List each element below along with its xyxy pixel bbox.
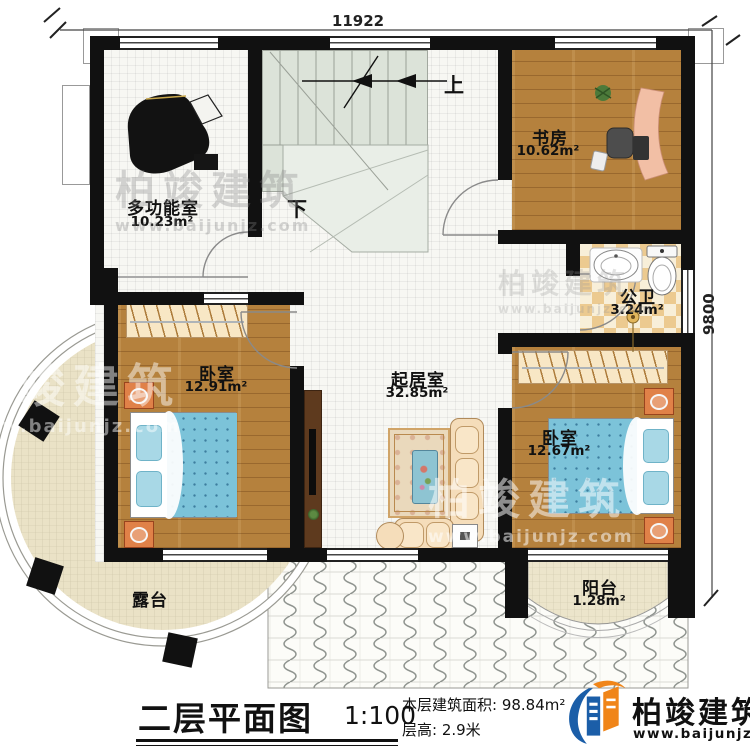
wall (668, 548, 695, 618)
floor-plan-canvas: 11922 9800 多功能室 10.23m² 书房 10.62m² 公卫 3.… (0, 0, 750, 752)
pillow (643, 429, 669, 463)
stairs-up-label: 上 (444, 69, 464, 98)
wall (498, 408, 512, 562)
room-area-balcony: 1.28m² (572, 593, 625, 609)
room-area-bedroom-right: 12.67m² (528, 443, 591, 459)
nightstand (124, 521, 154, 548)
wall (498, 230, 695, 244)
bed-left (130, 412, 236, 518)
pillow (136, 425, 162, 461)
wall (566, 244, 580, 276)
wall (290, 366, 304, 562)
sofa-cushion (455, 426, 479, 454)
floor-height-text: 层高: 2.9米 (402, 719, 481, 740)
room-area-multi: 10.23m² (131, 214, 194, 230)
sofa-cushion (455, 458, 479, 488)
floor-stairs (262, 50, 428, 192)
partition-line (104, 276, 203, 278)
wall (498, 347, 512, 354)
wardrobe-rail (522, 367, 664, 369)
room-area-living: 32.85m² (386, 385, 449, 401)
wall (681, 333, 695, 562)
room-area-study: 10.62m² (517, 143, 580, 159)
balcony-door-window (528, 548, 668, 562)
wall (498, 50, 512, 180)
wall (498, 333, 695, 347)
stairs-down-label: 下 (287, 193, 307, 222)
coffee-table (412, 450, 438, 504)
floor-area-text: 本层建筑面积: 98.84m² (402, 694, 565, 715)
title-underline (136, 745, 398, 746)
wardrobe (518, 350, 668, 384)
wall (248, 50, 262, 237)
window (163, 548, 267, 562)
side-table-top (460, 532, 470, 541)
wall (90, 292, 204, 305)
plant-icon (308, 509, 319, 520)
room-area-bedroom-left: 12.91m² (185, 379, 248, 395)
room-area-bath: 3.24m² (610, 302, 663, 318)
window-sill-outline (62, 85, 90, 185)
pillow (136, 471, 162, 507)
pillow (643, 471, 669, 505)
brand-logo-icon (558, 678, 630, 750)
terrace-pillar (162, 632, 198, 668)
wall (90, 268, 118, 292)
wall (505, 548, 528, 618)
window (330, 36, 430, 50)
wardrobe (126, 304, 248, 338)
sofa-cushion (455, 492, 479, 520)
plan-title: 二层平面图 (138, 692, 313, 740)
wall (248, 292, 304, 305)
wardrobe-rail (130, 321, 244, 323)
sofa-cushion (426, 522, 450, 548)
sofa-armrest (376, 522, 404, 550)
wall (681, 36, 695, 270)
title-underline (136, 739, 398, 742)
wall (104, 292, 118, 562)
tv-cabinet (304, 390, 322, 548)
wall (430, 36, 555, 50)
wall (267, 548, 327, 562)
brand-website: www.baijunjz.com (633, 726, 750, 742)
dimension-right: 9800 (700, 293, 718, 335)
wall (90, 36, 104, 268)
window (204, 292, 248, 305)
nightstand (124, 382, 154, 409)
nightstand (644, 388, 674, 415)
side-table (452, 524, 478, 548)
wall (104, 548, 163, 562)
flower-decor (413, 451, 437, 503)
window (555, 36, 656, 50)
room-label-terrace: 露台 (132, 586, 168, 611)
wall (218, 36, 330, 50)
window (120, 36, 218, 50)
window (327, 548, 418, 562)
dimension-top: 11922 (332, 12, 384, 30)
tv-icon (309, 429, 316, 495)
nightstand (644, 517, 674, 544)
window (681, 270, 695, 333)
